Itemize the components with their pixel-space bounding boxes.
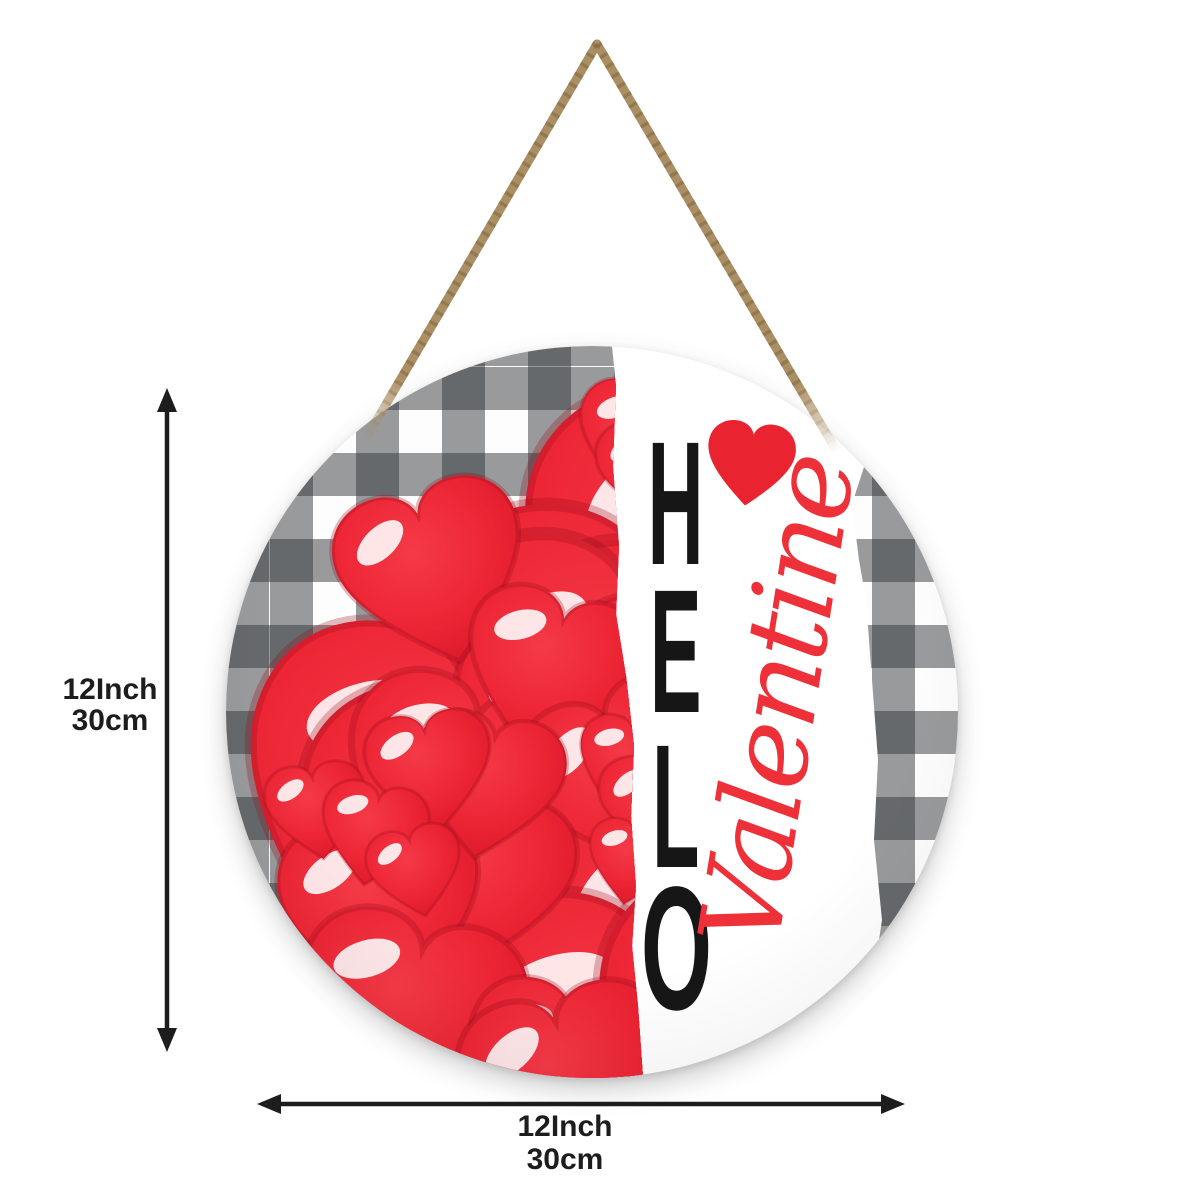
- height-cm-text: 30cm: [46, 705, 174, 736]
- product-photo-stage: 12Inch 30cm 12Inch 30cm HELO Valentine: [0, 0, 1200, 1200]
- width-dimension-label: 12Inch 30cm: [463, 1110, 667, 1176]
- round-door-sign: HELO Valentine: [226, 346, 958, 1078]
- height-inches-text: 12Inch: [46, 674, 174, 705]
- width-cm-text: 30cm: [463, 1143, 667, 1176]
- width-inches-text: 12Inch: [463, 1110, 667, 1143]
- height-dimension-label: 12Inch 30cm: [46, 674, 174, 736]
